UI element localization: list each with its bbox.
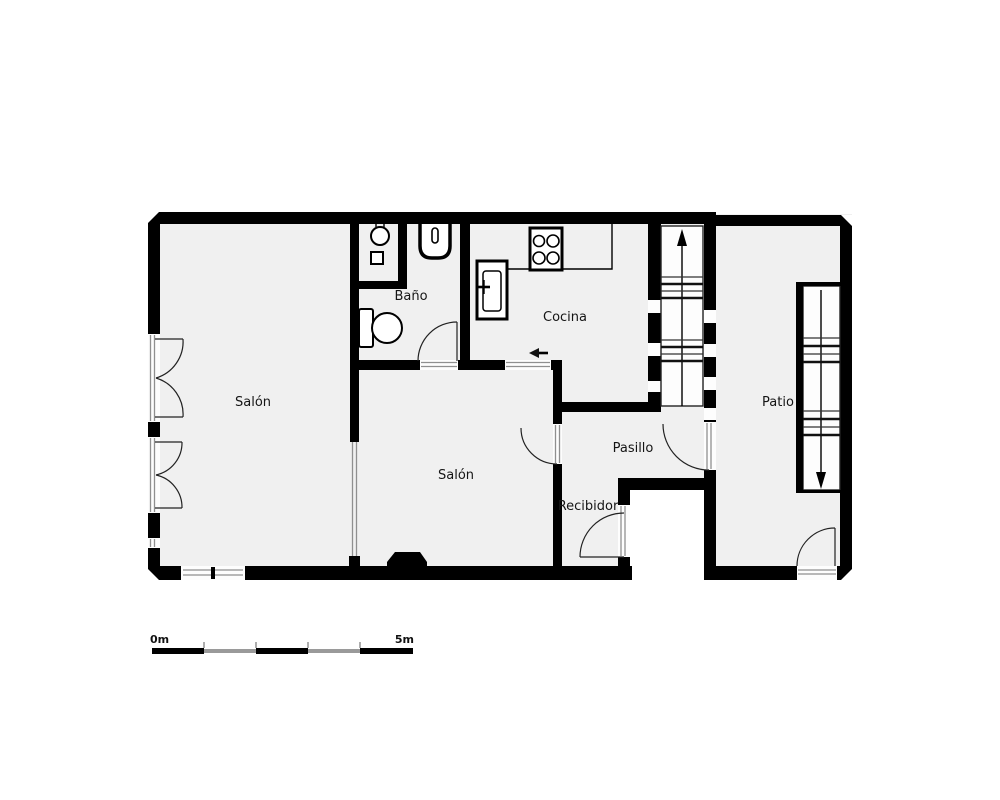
bano-inner-wall-h [358, 281, 407, 289]
staircase-main [661, 226, 703, 406]
bano-cocina-wall [460, 224, 470, 370]
entrance-recess [630, 490, 704, 586]
fireplace-icon [387, 552, 427, 580]
scale-start-label: 0m [150, 633, 169, 646]
floor-plan-drawing: Salón Baño Cocina Salón Pasillo Recibido… [0, 0, 1000, 800]
room-label-salon-left: Salón [235, 395, 271, 410]
room-label-patio: Patio [762, 395, 794, 410]
room-label-bano: Baño [394, 289, 427, 304]
room-label-cocina: Cocina [543, 310, 587, 325]
washbasin-icon [420, 224, 450, 258]
cocina-bottom-wall [458, 360, 505, 370]
patio-stair-top-border [796, 282, 843, 286]
room-label-recibidor: Recibidor [558, 499, 619, 514]
floor-plan-page: Salón Baño Cocina Salón Pasillo Recibido… [0, 0, 1000, 800]
stove-icon [530, 228, 562, 270]
pasillo-top-wall [553, 402, 661, 412]
patio-top-wall [710, 215, 852, 226]
top-wall [148, 212, 716, 224]
patio-stair-left-border [796, 282, 803, 493]
stairwell-right-wall [704, 224, 716, 580]
scale-bar: 0m 5m [150, 633, 414, 654]
toilet-icon [359, 309, 402, 347]
kitchen-sink-icon [477, 261, 507, 319]
scale-end-label: 5m [395, 633, 414, 646]
salon-center-right-wall [553, 368, 562, 566]
salon-divider-wall [350, 224, 359, 442]
right-wall [840, 215, 852, 580]
recess-top-wall [618, 478, 716, 490]
bano-bottom-wall [358, 360, 420, 370]
staircase-patio [796, 282, 843, 493]
bano-inner-wall-v [398, 224, 407, 289]
salon-divider-stub [349, 556, 360, 568]
patio-stair-bottom-border [796, 490, 843, 493]
bidet-square-icon [371, 252, 383, 264]
room-label-salon-center: Salón [438, 468, 474, 483]
room-label-pasillo: Pasillo [613, 441, 654, 456]
